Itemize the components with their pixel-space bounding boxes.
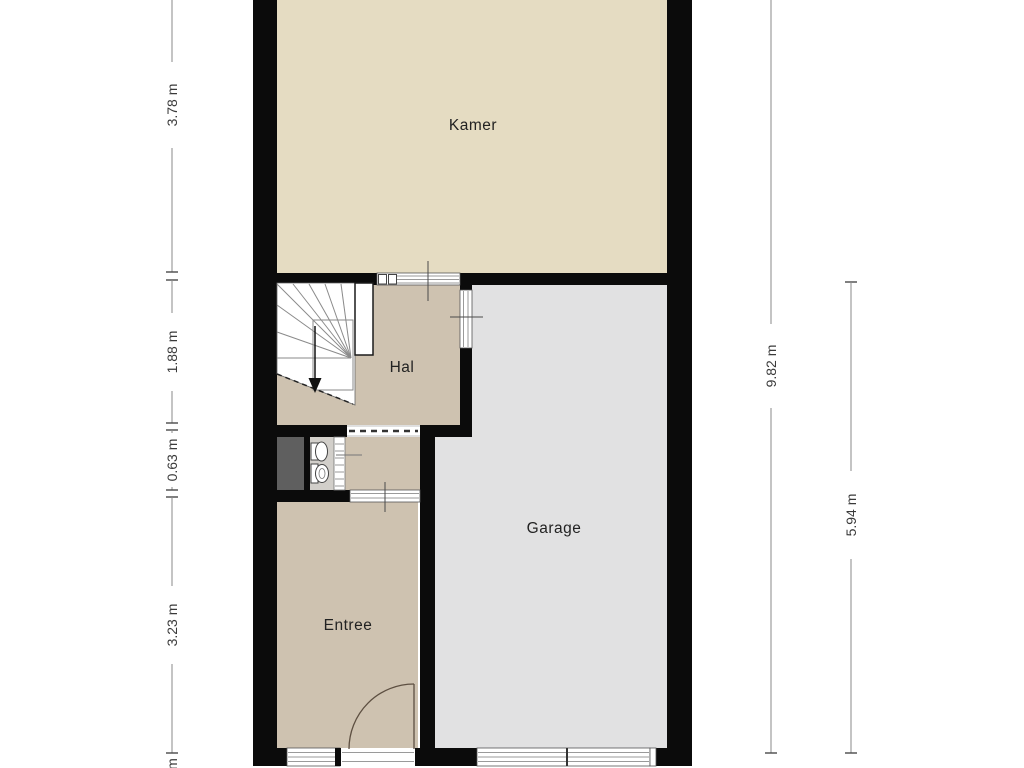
door-post-icon xyxy=(389,275,397,285)
room-label-kamer: Kamer xyxy=(449,117,497,134)
room-label-garage: Garage xyxy=(527,520,582,537)
entree-front-window xyxy=(287,748,340,766)
dim-label-partial-m: m xyxy=(164,758,180,768)
wall-exterior-left xyxy=(253,0,277,766)
room-label-hal: Hal xyxy=(390,359,415,376)
wall-exterior-right xyxy=(667,0,692,766)
wall-toilet-top xyxy=(277,425,347,437)
garage-front-windows xyxy=(477,748,656,766)
toilet-icon xyxy=(311,464,329,483)
wall-kamer-bottom-right xyxy=(460,273,667,285)
hand-basin-icon xyxy=(311,442,328,461)
wall-corridor-top-right xyxy=(420,425,472,437)
wall-bottom-middle xyxy=(415,748,477,766)
dim-label-9-82: 9.82 m xyxy=(763,345,779,388)
wall-entree-garage xyxy=(420,437,435,750)
dim-label-3-78: 3.78 m xyxy=(164,84,180,127)
void-area xyxy=(277,437,306,490)
wall-bottom-left xyxy=(253,748,287,766)
dim-label-5-94: 5.94 m xyxy=(843,494,859,537)
door-post-icon xyxy=(379,275,387,285)
front-door-opening xyxy=(341,748,415,766)
dim-label-3-23: 3.23 m xyxy=(164,604,180,647)
stair-railing xyxy=(355,283,373,355)
wall-toilet-divider xyxy=(304,437,310,490)
room-kamer-floor xyxy=(277,0,667,275)
floorplan-canvas: Kamer Hal Garage Entree 3.78 m 1.88 m 0.… xyxy=(0,0,1024,768)
wall-toilet-bottom xyxy=(277,490,350,502)
room-label-entree: Entree xyxy=(324,617,373,634)
front-window-post xyxy=(335,748,341,766)
hal-passage-opening xyxy=(347,425,420,437)
dim-label-1-88: 1.88 m xyxy=(164,331,180,374)
dimensions-right: 9.82 m 5.94 m xyxy=(763,0,859,753)
dimensions-left: 3.78 m 1.88 m 0.63 m 3.23 m m xyxy=(164,0,180,768)
dim-label-0-63: 0.63 m xyxy=(164,439,180,482)
wall-bottom-right xyxy=(656,748,692,766)
